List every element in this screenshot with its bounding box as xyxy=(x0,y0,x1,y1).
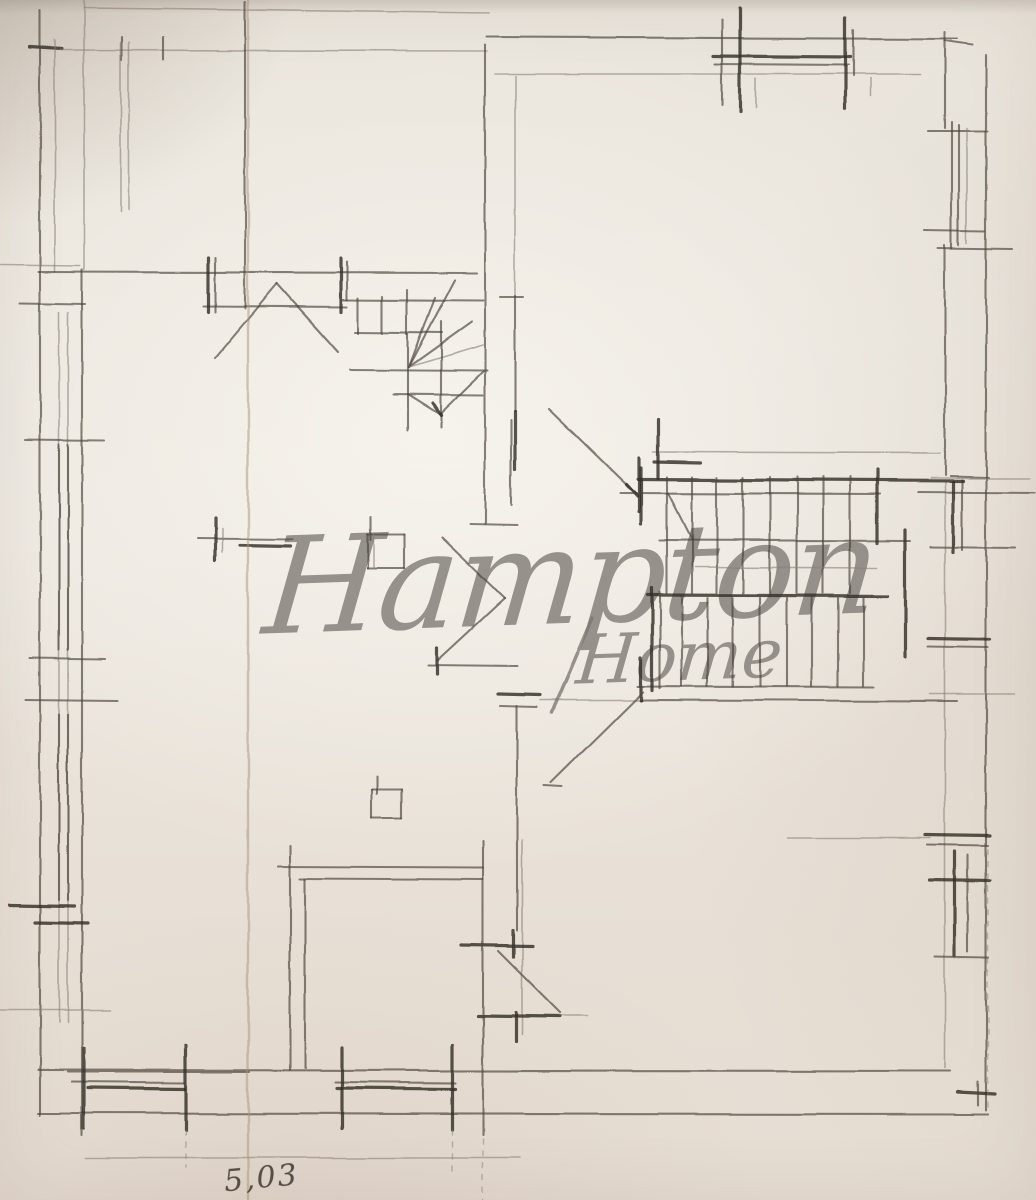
dimension-label: 5,03 xyxy=(223,1161,300,1197)
floorplan-drawing xyxy=(0,0,1036,1200)
pencil-strokes xyxy=(0,0,1035,1200)
paper-sheet: Hampton Home 5,03 xyxy=(0,0,1036,1200)
